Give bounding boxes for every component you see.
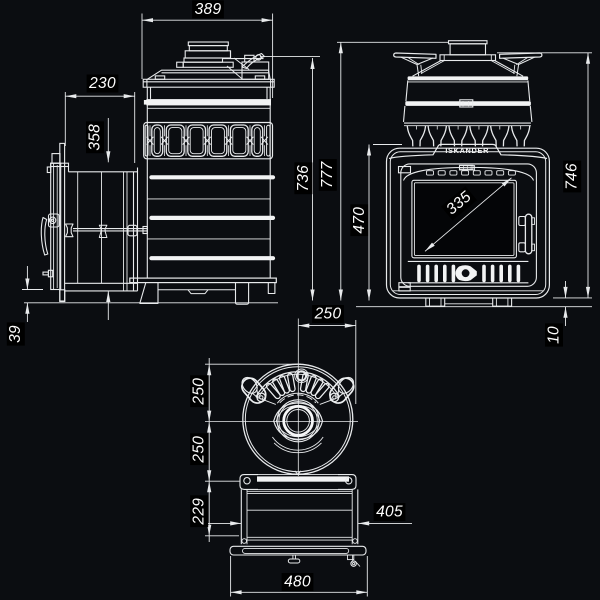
svg-text:736: 736 <box>295 165 312 192</box>
svg-text:ISKANDER: ISKANDER <box>445 146 489 155</box>
svg-text:405: 405 <box>376 503 403 520</box>
svg-text:358: 358 <box>86 124 103 151</box>
svg-text:480: 480 <box>284 573 311 590</box>
svg-text:229: 229 <box>191 498 208 526</box>
svg-text:250: 250 <box>191 436 208 464</box>
svg-text:250: 250 <box>314 305 342 322</box>
svg-text:746: 746 <box>564 163 581 190</box>
svg-text:230: 230 <box>88 75 116 92</box>
svg-text:777: 777 <box>319 160 336 188</box>
svg-text:39: 39 <box>7 325 24 343</box>
svg-text:250: 250 <box>191 378 208 406</box>
svg-text:470: 470 <box>351 207 368 234</box>
svg-text:10: 10 <box>545 326 562 344</box>
svg-text:389: 389 <box>195 1 222 18</box>
